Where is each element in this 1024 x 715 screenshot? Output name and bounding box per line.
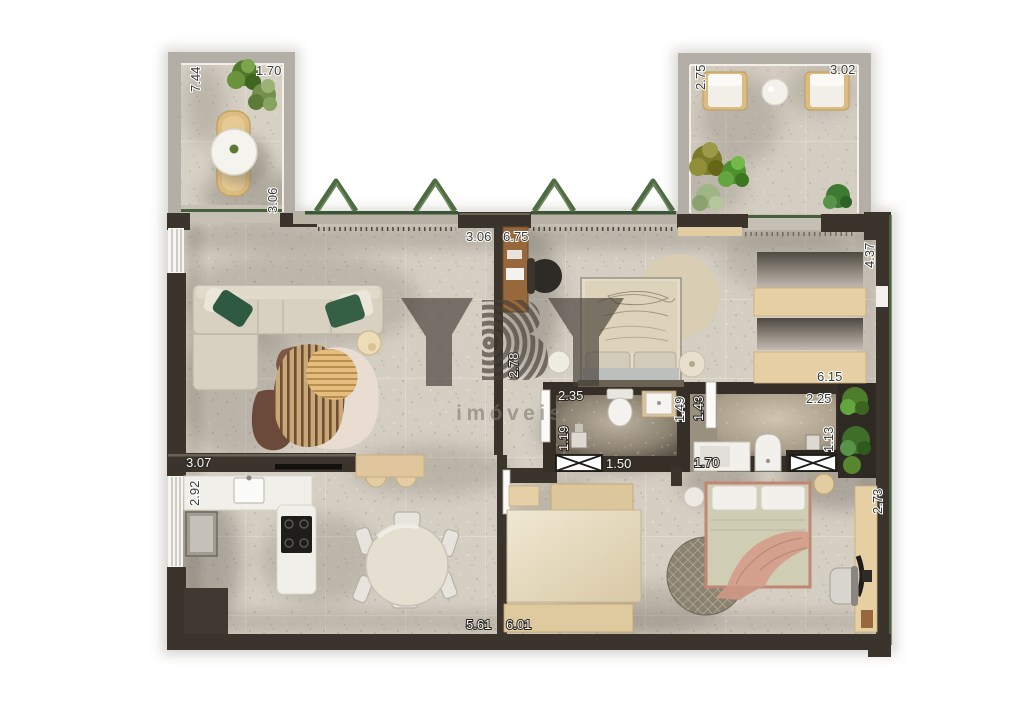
svg-text:2.78: 2.78: [506, 353, 521, 378]
svg-text:1.70: 1.70: [694, 455, 719, 470]
svg-text:6.75: 6.75: [503, 229, 528, 244]
svg-text:3.02: 3.02: [830, 62, 855, 77]
svg-text:2.35: 2.35: [558, 388, 583, 403]
svg-text:1.43: 1.43: [691, 396, 706, 421]
svg-text:1.70: 1.70: [256, 63, 281, 78]
svg-text:6.01: 6.01: [506, 617, 531, 632]
svg-text:2.25: 2.25: [806, 391, 831, 406]
svg-text:3.07: 3.07: [186, 455, 211, 470]
svg-text:2.75: 2.75: [693, 65, 708, 90]
svg-text:3.06: 3.06: [265, 188, 280, 213]
svg-text:1.49: 1.49: [672, 397, 687, 422]
svg-text:2.73: 2.73: [870, 489, 885, 514]
svg-text:imóveis: imóveis: [456, 402, 566, 425]
svg-text:6.15: 6.15: [817, 369, 842, 384]
svg-text:2.92: 2.92: [187, 481, 202, 506]
svg-text:1.19: 1.19: [556, 426, 571, 451]
svg-text:4.37: 4.37: [862, 243, 877, 268]
svg-text:1.13: 1.13: [821, 427, 836, 452]
svg-text:5.61: 5.61: [466, 617, 491, 632]
svg-text:3.06: 3.06: [466, 229, 491, 244]
svg-text:1.50: 1.50: [606, 456, 631, 471]
svg-text:7.44: 7.44: [188, 67, 203, 92]
